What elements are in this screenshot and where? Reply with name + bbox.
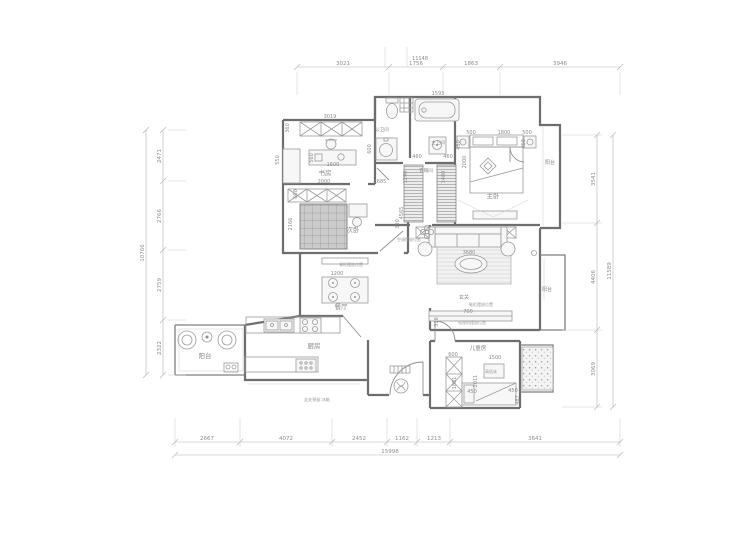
- inner-dim-value: 360: [285, 123, 291, 133]
- room-label: 阳台: [545, 159, 555, 166]
- inner-dim-value: 600: [448, 352, 458, 358]
- sofa-seat: [435, 234, 501, 247]
- master-tv-cabinet: [473, 211, 517, 219]
- floor-plan-page: 3021175618633946247127662759232210766354…: [0, 0, 740, 550]
- inner-dim-value: 450: [467, 389, 477, 395]
- kitchen-door-leaf: [343, 316, 361, 337]
- inner-dim-value: 318: [434, 317, 440, 327]
- fridge: [296, 359, 316, 372]
- inner-dim-value: 460: [443, 154, 453, 160]
- inner-dim-value: 600: [367, 144, 373, 154]
- room-label: 次卧: [347, 225, 361, 234]
- dryer: [218, 331, 236, 349]
- dim-value: 3069: [591, 362, 597, 376]
- study-window-hatch: [283, 149, 300, 183]
- dim-chain-top: 3021175618633946: [294, 61, 623, 95]
- room-label: 阳台: [542, 286, 552, 293]
- laundry-balcony-furniture: [178, 331, 236, 349]
- dim-value: 11589: [607, 262, 613, 280]
- inner-dim-value: 11148: [412, 56, 428, 62]
- inner-dim-value: 450: [521, 139, 527, 149]
- armchair-left: [418, 242, 432, 256]
- room-label: 餐厅: [335, 302, 349, 311]
- floor-lamp: [532, 251, 537, 256]
- dim-value: 2322: [157, 341, 163, 355]
- dim-value: 2471: [157, 149, 163, 163]
- dim-value: 1213: [427, 436, 441, 442]
- inner-dim-value: 1881: [452, 377, 458, 390]
- inner-dim-value: 2000: [462, 156, 468, 169]
- room-label: 儿童房: [470, 344, 487, 352]
- inner-dim-value: 2000: [318, 179, 331, 185]
- room-label: 公卫间: [375, 126, 389, 133]
- inner-dim-value: 450: [456, 140, 462, 150]
- dim-chain-right-total: 11589: [607, 132, 616, 410]
- inner-dim-value: 4565: [399, 207, 405, 220]
- inner-dim-value: 300: [395, 219, 401, 229]
- armchair-right: [501, 242, 515, 256]
- inner-dim-value: 1685: [374, 179, 387, 185]
- inner-dim-value: 1500: [489, 355, 502, 361]
- bedroom2-furniture: [288, 189, 367, 249]
- placement-note: 电视机摆放位置: [458, 319, 486, 325]
- room-label: 阳台: [199, 351, 212, 360]
- inner-dim-value: 3680: [463, 250, 476, 256]
- inner-dim-value: 2166: [288, 218, 294, 231]
- placement-note: 高低床: [485, 368, 497, 374]
- pillow-left: [473, 137, 493, 145]
- bed-throw: [480, 158, 496, 174]
- dim-value: 15998: [381, 449, 399, 455]
- inner-dim-value: 487: [515, 395, 521, 405]
- room-label: 玄关: [459, 294, 469, 301]
- dim-value: 2759: [157, 278, 163, 292]
- toilet-tank: [386, 98, 398, 103]
- inner-dim-value: 1593: [432, 91, 445, 97]
- inner-dim-value: 500: [522, 130, 532, 136]
- inner-dim-value: 460: [412, 154, 422, 160]
- inner-dim-value: 2011: [473, 375, 479, 388]
- inner-dim-value: 1480: [441, 171, 447, 184]
- washing-machine: [178, 331, 196, 349]
- floor-plan-canvas: 3021175618633946247127662759232210766354…: [0, 0, 740, 550]
- dim-value: 3641: [528, 436, 542, 442]
- inner-dim-value: 450: [508, 388, 518, 394]
- dim-value: 4406: [591, 270, 597, 284]
- inner-dim-value: 1600: [327, 162, 340, 168]
- dimension-chains: 3021175618633946247127662759232210766354…: [140, 61, 623, 458]
- dim-value: 2452: [352, 436, 366, 442]
- bedroom2-desk: [349, 204, 367, 217]
- room-label: 书房: [319, 168, 332, 177]
- inner-dim-value: 700: [463, 309, 473, 315]
- placement-note: 空调摆放位置: [397, 236, 421, 242]
- sofa-back: [435, 227, 501, 234]
- placement-note: 鞋柜摆放位置: [469, 301, 493, 307]
- study-chair: [326, 139, 336, 149]
- dim-value: 1863: [464, 61, 478, 67]
- toilet-bowl: [387, 104, 398, 119]
- placement-note: 餐柜摆放位置: [339, 261, 363, 267]
- inner-dim-value: 1200: [331, 271, 344, 277]
- dim-value: 3946: [553, 61, 567, 67]
- children-balcony-floor: [522, 347, 553, 390]
- tatami-mat: [300, 204, 347, 249]
- dim-chain-bottom: 266740722452116212133641: [172, 418, 623, 447]
- inner-dim-value: 560: [309, 153, 315, 163]
- room-label: 主卧: [487, 191, 501, 200]
- inner-dim-value: 1800: [498, 130, 511, 136]
- inner-dim-value: 500: [466, 130, 476, 136]
- dim-chain-left-total: 10766: [140, 127, 149, 378]
- dim-value: 4072: [279, 436, 293, 442]
- inner-dim-value: 550: [275, 155, 281, 165]
- inner-dim-value: 3019: [324, 114, 337, 120]
- entry-furniture: [390, 366, 410, 393]
- dim-chain-right: 354144063069: [562, 132, 602, 410]
- placement-note: 此处预留:冰箱: [304, 396, 329, 402]
- dim-value: 2766: [157, 209, 163, 223]
- bathroom-fixtures: [376, 98, 459, 222]
- dim-value: 1162: [395, 436, 409, 442]
- inner-dim-value: 600: [293, 189, 299, 199]
- balcony-left-wall: [175, 325, 245, 375]
- dim-value: 3021: [336, 61, 350, 67]
- dim-value: 2667: [200, 436, 214, 442]
- dim-value: 3541: [591, 172, 597, 186]
- pillow-right: [497, 137, 517, 145]
- dim-value: 10766: [140, 244, 146, 262]
- room-label: 主卫间: [431, 139, 445, 146]
- inner-dim-value: 1290: [403, 171, 409, 184]
- dim-chain-bottom-total: 15998: [172, 449, 623, 458]
- room-label: 衣帽间: [419, 167, 433, 174]
- room-label: 厨房: [308, 341, 321, 350]
